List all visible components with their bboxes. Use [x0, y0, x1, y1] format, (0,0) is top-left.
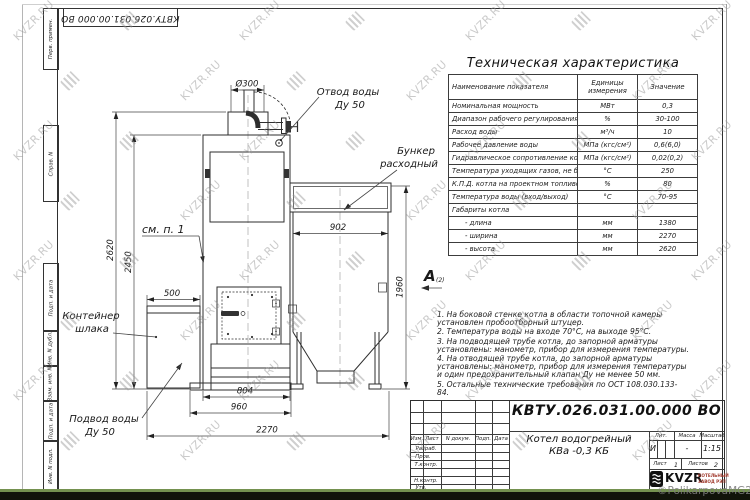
dimension-lines: [116, 90, 406, 436]
table-row: Температура воды (вход/выход)°С70-95: [449, 191, 698, 204]
note-item: 5. Остальные технические требования по О…: [437, 381, 689, 397]
note-item: 1. На боковой стенке котла в области топ…: [437, 311, 689, 327]
dim-2450: 2450: [124, 251, 134, 273]
tb-col-list: Лист: [425, 436, 438, 442]
bottom-dark-strip: [0, 492, 750, 500]
tb-row-prov: Пров.: [415, 454, 430, 460]
copyright-watermark: ©PolikarpovaMG2021: [657, 485, 750, 497]
table-row: Рабочее давление водыМПа (кгс/см²)0,6(6,…: [449, 139, 698, 152]
label-water-outlet-2: Ду 50: [334, 100, 365, 111]
label-water-inlet-2: Ду 50: [84, 427, 115, 438]
tb-mass-value: -: [686, 444, 689, 453]
spec-header-name: Наименование показателя: [449, 75, 578, 100]
tb-lit-value: И: [650, 444, 656, 453]
view-marker-a: А: [423, 267, 436, 285]
spec-header-units: Единицы измерения: [578, 75, 638, 100]
spec-header-value: Значение: [638, 75, 698, 100]
tb-col-date: Дата: [494, 436, 508, 442]
label-bunker-2: расходный: [379, 159, 438, 170]
spec-table: Наименование показателя Единицы измерени…: [448, 74, 698, 256]
label-see-note: см. п. 1: [142, 223, 185, 236]
tb-sheets-value: 2: [714, 461, 718, 469]
spec-table-title: Техническая характеристика: [448, 56, 698, 71]
table-row: Температура уходящих газов, не более°С25…: [449, 165, 698, 178]
table-row: Расход водым³/ч10: [449, 126, 698, 139]
tb-row-tkontr: Т.контр.: [415, 462, 438, 468]
table-row: Диапазон рабочего регулирования%30-100: [449, 113, 698, 126]
centerlines: [248, 95, 340, 396]
label-water-inlet-1: Подвод воды: [69, 414, 139, 425]
kvzr-logo-caption: КОТЕЛЬНЫЙ ЗАВОД РЭП: [698, 473, 729, 484]
dim-d300: Ø300: [235, 79, 259, 90]
doc-number: КВТУ.026.031.00.000 ВО: [509, 403, 724, 419]
table-row: - длинамм1380: [449, 217, 698, 230]
dim-500: 500: [164, 289, 180, 299]
table-row: - ширинамм2270: [449, 230, 698, 243]
dim-960: 960: [231, 403, 247, 413]
tb-row-razrab: Разраб.: [416, 446, 437, 452]
table-row: - высотамм2620: [449, 243, 698, 256]
spec-header-row: Наименование показателя Единицы измерени…: [449, 75, 698, 100]
tb-sheet-label: Лист: [653, 461, 666, 467]
note-item: 4. На отводящей трубе котла, до запорной…: [437, 355, 689, 380]
table-row: Габариты котла: [449, 204, 698, 217]
table-row: К.П.Д. котла на проектном топливе%80: [449, 178, 698, 191]
technical-notes: 1. На боковой стенке котла в области топ…: [437, 311, 689, 398]
label-bunker-1: Бункер: [397, 146, 435, 157]
label-water-outlet-1: Отвод воды: [317, 87, 380, 98]
note-item: 3. На подводящей трубе котла, до запорно…: [437, 338, 689, 354]
dim-1960: 1960: [396, 276, 406, 298]
label-slag-container-2: шлака: [75, 324, 109, 335]
tb-scale-value: 1:15: [703, 444, 721, 453]
tb-sheets-label: Листов: [688, 461, 708, 467]
slag-container: [147, 306, 200, 388]
dim-804: 804: [237, 387, 253, 397]
tb-row-nkontr: Н.контр.: [414, 478, 438, 484]
note-item: 2. Температура воды на входе 70°С, на вы…: [437, 328, 689, 336]
tb-sheet-value: 1: [674, 461, 678, 469]
tb-lit-header: Лит.: [655, 433, 667, 439]
boiler-body: [190, 90, 298, 390]
tb-mass-header: Масса: [679, 433, 696, 439]
leader-lines: [113, 97, 442, 418]
label-slag-container-1: Контейнер: [62, 311, 119, 322]
extension-lines: [112, 85, 410, 440]
drawing-sheet: КВТУ.026.031.00.000 ВО Перв. примен. Спр…: [0, 0, 750, 500]
product-name-line1: Котел водогрейный: [509, 434, 649, 446]
title-block: Изм. Лист N докум. Подп. Дата Разраб. Пр…: [410, 400, 725, 492]
dim-2620: 2620: [106, 239, 116, 261]
dim-902: 902: [330, 223, 346, 233]
dim-2270: 2270: [256, 426, 278, 436]
table-row: Гидравлическое сопротивление котлаМПа (к…: [449, 152, 698, 165]
tb-col-doc: N докум.: [446, 436, 471, 442]
table-row: Номинальная мощностьМВт0,3: [449, 100, 698, 113]
product-name-line2: КВа -0,3 КБ: [509, 446, 649, 458]
dimension-arrows: [114, 88, 429, 439]
product-name: Котел водогрейный КВа -0,3 КБ: [509, 434, 649, 458]
tb-col-izm: Изм.: [411, 436, 423, 442]
tb-col-sign: Подп.: [475, 436, 491, 442]
view-marker-sub: (2): [436, 277, 445, 284]
tb-scale-header: Масштаб: [699, 433, 724, 439]
